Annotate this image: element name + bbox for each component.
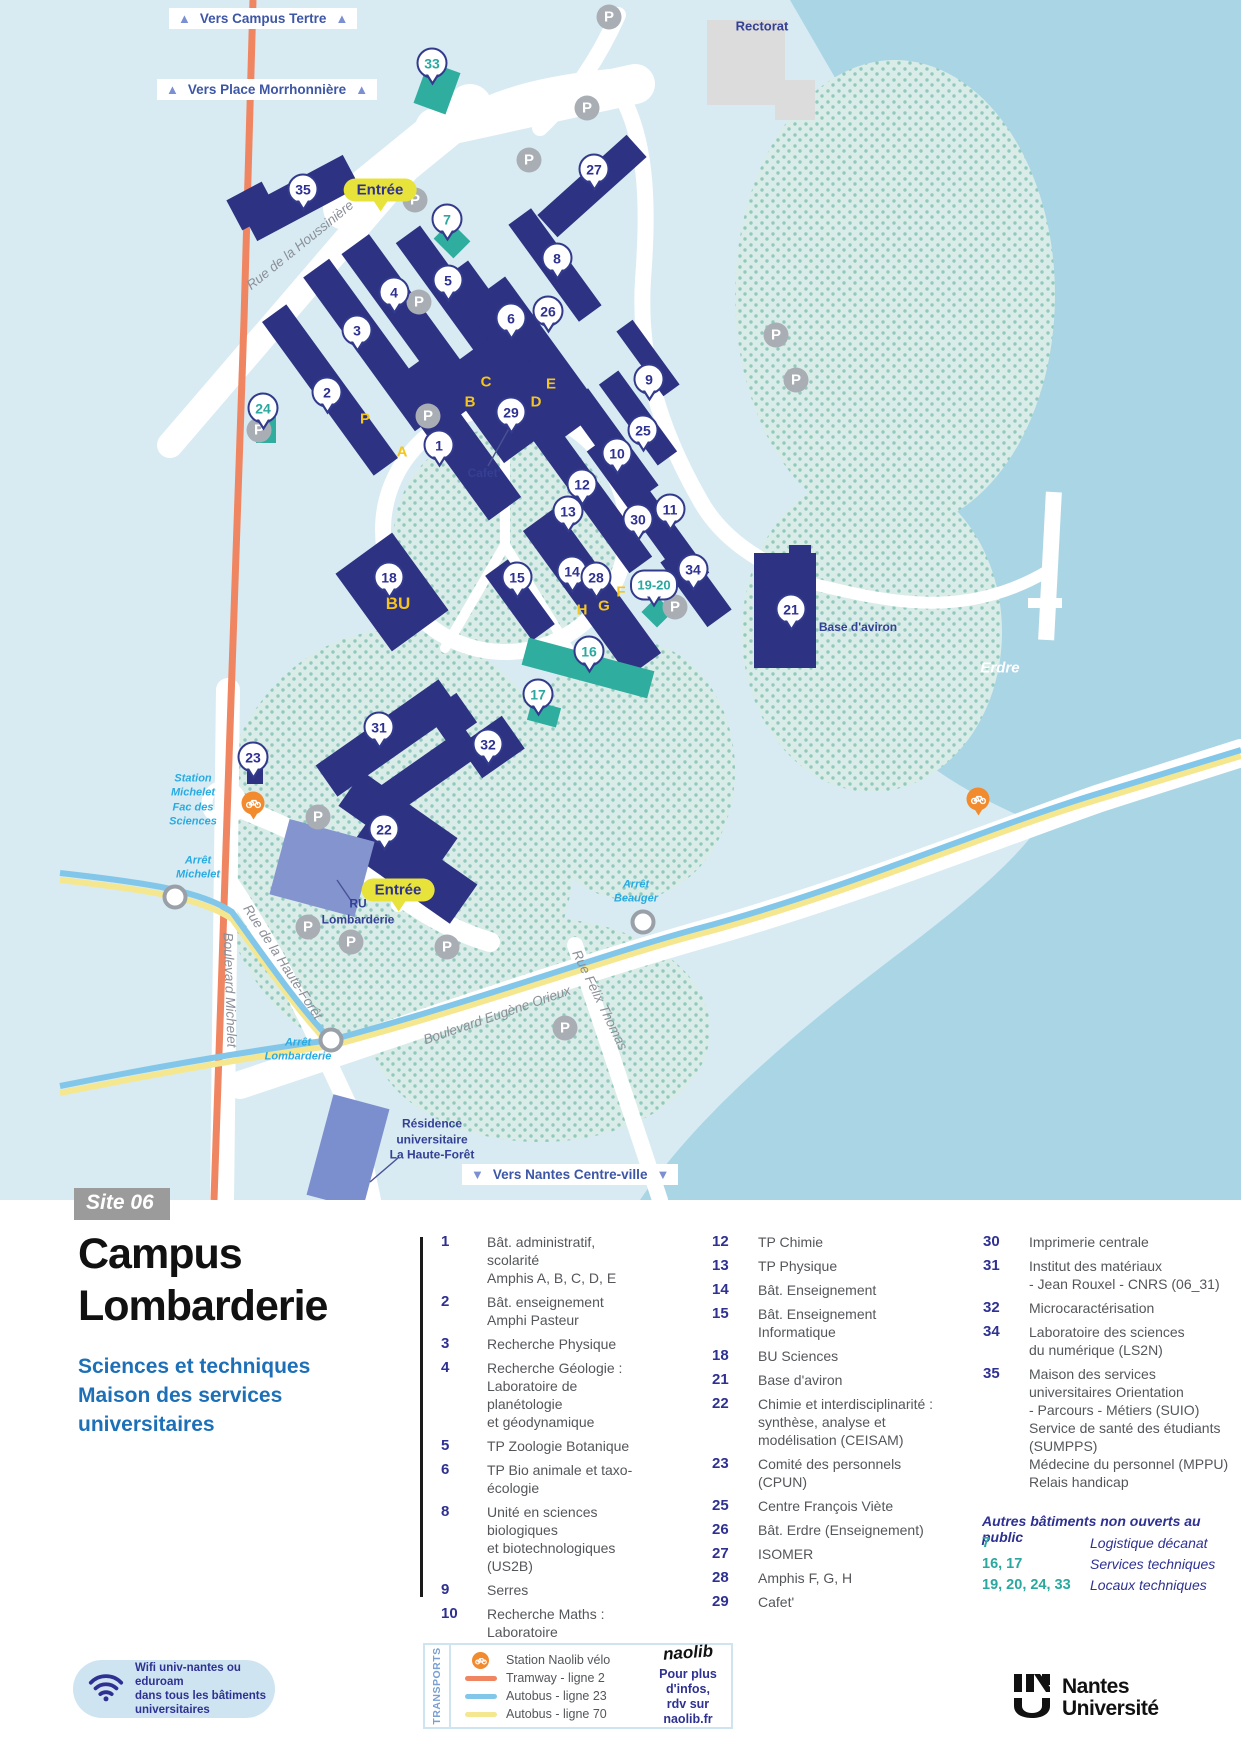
other-label: Services techniques <box>1090 1556 1215 1573</box>
base-aviron-label: Base d'aviron <box>819 620 897 636</box>
legend-item: 30Imprimerie centrale <box>983 1233 1233 1251</box>
naolib-bike-station-icon <box>472 1652 489 1669</box>
other-buildings-row: 7Logistique décanat <box>982 1535 1232 1552</box>
marker-label: 25 <box>635 422 651 438</box>
legend-item: 5TP Zoologie Botanique <box>441 1437 651 1455</box>
legend-item: 2Bât. enseignement Amphi Pasteur <box>441 1293 651 1329</box>
other-nums: 16, 17 <box>982 1556 1090 1573</box>
direction-place-morrhonniere: ▲ Vers Place Morrhonnière ▲ <box>157 79 377 100</box>
legend-num: 18 <box>712 1347 758 1365</box>
arrow-up-icon: ▲ <box>178 11 191 26</box>
marker-label: 24 <box>255 400 271 416</box>
naolib-bike-station-icon <box>967 788 990 811</box>
building-marker-5[interactable]: 5 <box>433 265 464 296</box>
legend-text: Imprimerie centrale <box>1029 1233 1149 1251</box>
legend-text: Cafet' <box>758 1593 794 1611</box>
legend-item: 27ISOMER <box>712 1545 947 1563</box>
legend-text: TP Zoologie Botanique <box>487 1437 629 1455</box>
transport-item-bus23: Autobus - ligne 23 <box>465 1687 645 1705</box>
legend-text: Comité des personnels (CPUN) <box>758 1455 947 1491</box>
transport-label: Tramway - ligne 2 <box>506 1671 605 1685</box>
building-marker-3[interactable]: 3 <box>342 315 373 346</box>
marker-label: 26 <box>540 303 556 319</box>
marker-label: 4 <box>390 284 398 300</box>
building-marker-13[interactable]: 13 <box>553 496 584 527</box>
other-nums: 19, 20, 24, 33 <box>982 1577 1090 1594</box>
building-marker-30[interactable]: 30 <box>623 504 654 535</box>
wifi-icon <box>87 1671 125 1707</box>
legend-text: Centre François Viète <box>758 1497 893 1515</box>
legend-num: 6 <box>441 1461 487 1497</box>
legend-item: 4Recherche Géologie : Laboratoire de pla… <box>441 1359 651 1431</box>
transport-item-tram: Tramway - ligne 2 <box>465 1669 645 1687</box>
legend-item: 14Bât. Enseignement <box>712 1281 947 1299</box>
marker-label: 10 <box>609 445 625 461</box>
legend-item: 3Recherche Physique <box>441 1335 651 1353</box>
legend-item: 8Unité en sciences biologiques et biotec… <box>441 1503 651 1575</box>
nantes-universite-brand: Nantes Université <box>1012 1672 1159 1723</box>
legend-text: Institut des matériaux - Jean Rouxel - C… <box>1029 1257 1220 1293</box>
building-marker-34[interactable]: 34 <box>678 554 709 585</box>
marker-label: 19-20 <box>637 578 670 593</box>
legend-text: Bât. enseignement Amphi Pasteur <box>487 1293 604 1329</box>
legend-text: Serres <box>487 1581 528 1599</box>
legend-num: 12 <box>712 1233 758 1251</box>
legend-item: 13TP Physique <box>712 1257 947 1275</box>
arrow-up-icon: ▲ <box>355 82 368 97</box>
other-label: Locaux techniques <box>1090 1577 1207 1594</box>
bus70-line-swatch <box>465 1712 497 1717</box>
arrow-down-icon: ▼ <box>656 1167 669 1182</box>
brand-name: Nantes Université <box>1062 1676 1159 1720</box>
legend-text: Bât. Enseignement Informatique <box>758 1305 876 1341</box>
parking-icon: P <box>764 323 789 348</box>
building-marker-2[interactable]: 2 <box>312 377 343 408</box>
legend-item: 21Base d'aviron <box>712 1371 947 1389</box>
legend-text: Bât. administratif, scolarité Amphis A, … <box>487 1233 651 1287</box>
legend-text: Amphis F, G, H <box>758 1569 852 1587</box>
legend-item: 9Serres <box>441 1581 651 1599</box>
erdre-label: Erdre <box>980 660 1019 677</box>
legend-text: Bât. Enseignement <box>758 1281 876 1299</box>
legend-num: 29 <box>712 1593 758 1611</box>
transport-item-bus70: Autobus - ligne 70 <box>465 1705 645 1723</box>
legend-num: 8 <box>441 1503 487 1575</box>
building-marker-16[interactable]: 16 <box>574 636 605 667</box>
marker-label: 14 <box>564 563 580 579</box>
campus-map-page: ▲ Vers Campus Tertre ▲ ▲ Vers Place Morr… <box>0 0 1241 1754</box>
direction-nantes-centre-ville: ▼ Vers Nantes Centre-ville ▼ <box>462 1164 678 1185</box>
building-marker-9[interactable]: 9 <box>634 364 665 395</box>
building-marker-8[interactable]: 8 <box>542 243 573 274</box>
marker-label: 18 <box>381 569 397 585</box>
naolib-logo: naolib <box>663 1643 714 1661</box>
marker-label: 17 <box>530 686 546 702</box>
bus23-line-swatch <box>465 1694 497 1699</box>
building-marker-29[interactable]: 29 <box>496 397 527 428</box>
building-marker-4[interactable]: 4 <box>379 277 410 308</box>
legend-num: 4 <box>441 1359 487 1431</box>
marker-label: 6 <box>507 310 515 326</box>
arret-michelet-label: Arrêt Michelet <box>176 854 220 883</box>
other-buildings-list: 7Logistique décanat 16, 17Services techn… <box>982 1535 1232 1598</box>
building-marker-18[interactable]: 18 <box>374 562 405 593</box>
legend-item: 29Cafet' <box>712 1593 947 1611</box>
legend-text: TP Physique <box>758 1257 837 1275</box>
parking-icon: P <box>407 290 432 315</box>
marker-label: 3 <box>353 322 361 338</box>
building-marker-19-20[interactable]: 19-20 <box>630 570 678 601</box>
parking-icon: P <box>553 1016 578 1041</box>
cafet-label: Cafet' <box>468 466 501 482</box>
parking-icon: P <box>416 404 441 429</box>
building-marker-32[interactable]: 32 <box>473 729 504 760</box>
marker-label: 33 <box>424 55 440 71</box>
marker-label: 23 <box>245 749 261 765</box>
legend-column-2: 12TP Chimie 13TP Physique 14Bât. Enseign… <box>712 1233 947 1617</box>
legend-item: 6TP Bio animale et taxo-écologie <box>441 1461 651 1497</box>
legend-num: 30 <box>983 1233 1029 1251</box>
marker-label: 27 <box>586 161 602 177</box>
legend-num: 1 <box>441 1233 487 1287</box>
marker-label: 21 <box>783 601 799 617</box>
legend-num: 15 <box>712 1305 758 1341</box>
legend-num: 32 <box>983 1299 1029 1317</box>
legend-text: Base d'aviron <box>758 1371 842 1389</box>
legend-num: 35 <box>983 1365 1029 1491</box>
legend-text: BU Sciences <box>758 1347 838 1365</box>
amphi-letter-c: C <box>481 374 492 391</box>
legend-text: Unité en sciences biologiques et biotech… <box>487 1503 651 1575</box>
building-marker-1[interactable]: 1 <box>424 430 455 461</box>
legend-text: Laboratoire des sciences du numérique (L… <box>1029 1323 1185 1359</box>
other-buildings-row: 16, 17Services techniques <box>982 1556 1232 1573</box>
marker-label: 30 <box>630 511 646 527</box>
legend-column-3: 30Imprimerie centrale 31Institut des mat… <box>983 1233 1233 1497</box>
marker-label: 29 <box>503 404 519 420</box>
parking-icon: P <box>517 148 542 173</box>
amphi-letter-e: E <box>546 376 556 393</box>
parking-icon: P <box>296 915 321 940</box>
legend-num: 31 <box>983 1257 1029 1293</box>
amphi-letter-d: D <box>531 394 542 411</box>
amphi-letter-f: F <box>616 584 625 601</box>
amphi-letter-p: P <box>360 411 370 428</box>
residence-label: Résidence universitaire La Haute-Forêt <box>390 1117 475 1164</box>
legend-item: 28Amphis F, G, H <box>712 1569 947 1587</box>
entrance-badge-south: Entrée <box>362 879 435 902</box>
legend-text: TP Chimie <box>758 1233 823 1251</box>
marker-label: 13 <box>560 503 576 519</box>
legend-divider <box>420 1237 423 1597</box>
transport-item-bike: Station Naolib vélo <box>465 1651 645 1669</box>
legend-num: 25 <box>712 1497 758 1515</box>
arrow-up-icon: ▲ <box>166 82 179 97</box>
transport-label: Autobus - ligne 23 <box>506 1689 607 1703</box>
legend-num: 27 <box>712 1545 758 1563</box>
arrow-up-icon: ▲ <box>335 11 348 26</box>
legend-num: 14 <box>712 1281 758 1299</box>
direction-label: Vers Campus Tertre <box>200 11 327 26</box>
legend-num: 34 <box>983 1323 1029 1359</box>
building-marker-7[interactable]: 7 <box>432 204 463 235</box>
site-badge: Site 06 <box>74 1188 170 1220</box>
map-canvas[interactable]: ▲ Vers Campus Tertre ▲ ▲ Vers Place Morr… <box>0 0 1241 1200</box>
legend-text: Microcaractérisation <box>1029 1299 1154 1317</box>
naolib-block: naolib Pour plus d'infos, rdv sur naolib… <box>645 1645 731 1727</box>
direction-campus-tertre: ▲ Vers Campus Tertre ▲ <box>169 8 357 29</box>
building-marker-15[interactable]: 15 <box>502 562 533 593</box>
other-nums: 7 <box>982 1535 1090 1552</box>
building-marker-33[interactable]: 33 <box>417 48 448 79</box>
legend-num: 23 <box>712 1455 758 1491</box>
marker-label: 32 <box>480 736 496 752</box>
legend-item: 1Bât. administratif, scolarité Amphis A,… <box>441 1233 651 1287</box>
arrow-down-icon: ▼ <box>471 1167 484 1182</box>
amphi-letter-h: H <box>577 602 588 619</box>
legend-num: 13 <box>712 1257 758 1275</box>
building-marker-6[interactable]: 6 <box>496 303 527 334</box>
transports-legend: TRANSPORTS Station Naolib vélo Tramway -… <box>423 1643 733 1729</box>
building-marker-24[interactable]: 24 <box>248 393 279 424</box>
parking-icon: P <box>784 368 809 393</box>
marker-label: 15 <box>509 569 525 585</box>
legend-num: 9 <box>441 1581 487 1599</box>
bus-stop-lombarderie <box>319 1028 344 1053</box>
entrance-badge-north: Entrée <box>344 179 417 202</box>
building-marker-21[interactable]: 21 <box>776 594 807 625</box>
transports-items: Station Naolib vélo Tramway - ligne 2 Au… <box>451 1645 645 1727</box>
legend-item: 35Maison des services universitaires Ori… <box>983 1365 1233 1491</box>
legend-item: 12TP Chimie <box>712 1233 947 1251</box>
marker-label: 12 <box>574 476 590 492</box>
building-marker-10[interactable]: 10 <box>602 438 633 469</box>
transports-title: TRANSPORTS <box>425 1645 451 1727</box>
legend-text: ISOMER <box>758 1545 813 1563</box>
legend-item: 32Microcaractérisation <box>983 1299 1233 1317</box>
legend-num: 22 <box>712 1395 758 1449</box>
legend-num: 5 <box>441 1437 487 1455</box>
legend-item: 18BU Sciences <box>712 1347 947 1365</box>
legend-item: 31Institut des matériaux - Jean Rouxel -… <box>983 1257 1233 1293</box>
parking-icon: P <box>575 96 600 121</box>
nantes-universite-logo-icon <box>1012 1672 1052 1723</box>
other-label: Logistique décanat <box>1090 1535 1208 1552</box>
marker-label: 16 <box>581 643 597 659</box>
marker-label: 8 <box>553 250 561 266</box>
building-marker-25[interactable]: 25 <box>628 415 659 446</box>
rectorat-label: Rectorat <box>736 19 789 36</box>
legend-item: 15Bât. Enseignement Informatique <box>712 1305 947 1341</box>
other-buildings-row: 19, 20, 24, 33Locaux techniques <box>982 1577 1232 1594</box>
marker-label: 22 <box>376 821 392 837</box>
marker-label: 2 <box>323 384 331 400</box>
parking-icon: P <box>435 935 460 960</box>
legend-num: 2 <box>441 1293 487 1329</box>
marker-label: 28 <box>588 569 604 585</box>
legend-item: 23Comité des personnels (CPUN) <box>712 1455 947 1491</box>
page-title: Campus Lombarderie <box>78 1228 327 1332</box>
legend-num: 3 <box>441 1335 487 1353</box>
bus-stop-beauger <box>631 910 656 935</box>
marker-label: 9 <box>645 371 653 387</box>
wifi-text: Wifi univ-nantes ou eduroam dans tous le… <box>135 1661 269 1717</box>
marker-label: 31 <box>371 719 387 735</box>
amphi-letter-a: A <box>397 444 408 461</box>
building-marker-11[interactable]: 11 <box>655 494 686 525</box>
naolib-bike-station-icon <box>242 792 265 815</box>
legend-text: Chimie et interdisciplinarité : synthèse… <box>758 1395 933 1449</box>
direction-label: Vers Place Morrhonnière <box>188 82 346 97</box>
legend-text: TP Bio animale et taxo-écologie <box>487 1461 651 1497</box>
legend-item: 25Centre François Viète <box>712 1497 947 1515</box>
marker-label: 35 <box>295 181 311 197</box>
legend-text: Recherche Physique <box>487 1335 616 1353</box>
wifi-pill: Wifi univ-nantes ou eduroam dans tous le… <box>73 1660 275 1718</box>
building-marker-28[interactable]: 28 <box>581 562 612 593</box>
tram-line-swatch <box>465 1676 497 1681</box>
transport-label: Station Naolib vélo <box>506 1653 610 1667</box>
building-marker-22[interactable]: 22 <box>369 814 400 845</box>
legend-num: 28 <box>712 1569 758 1587</box>
legend-item: 26Bât. Erdre (Enseignement) <box>712 1521 947 1539</box>
arret-beauger-label: Arrêt Beauger <box>614 878 658 907</box>
building-marker-17[interactable]: 17 <box>523 679 554 710</box>
legend-num: 21 <box>712 1371 758 1389</box>
legend-item: 34Laboratoire des sciences du numérique … <box>983 1323 1233 1359</box>
legend-text: Bât. Erdre (Enseignement) <box>758 1521 924 1539</box>
building-marker-27[interactable]: 27 <box>579 154 610 185</box>
building-marker-35[interactable]: 35 <box>288 174 319 205</box>
marker-label: 1 <box>435 437 443 453</box>
direction-label: Vers Nantes Centre-ville <box>493 1167 648 1182</box>
transport-label: Autobus - ligne 70 <box>506 1707 607 1721</box>
page-subtitle: Sciences et techniques Maison des servic… <box>78 1352 310 1439</box>
marker-label: 7 <box>443 211 451 227</box>
marker-label: 34 <box>685 561 701 577</box>
legend-text: Recherche Géologie : Laboratoire de plan… <box>487 1359 651 1431</box>
building-marker-31[interactable]: 31 <box>364 712 395 743</box>
legend-item: 22Chimie et interdisciplinarité : synthè… <box>712 1395 947 1449</box>
marker-label: 5 <box>444 272 452 288</box>
building-marker-26[interactable]: 26 <box>533 296 564 327</box>
marker-label: 11 <box>663 501 678 517</box>
parking-icon: P <box>597 5 622 30</box>
naolib-info-text: Pour plus d'infos, rdv sur naolib.fr <box>645 1667 731 1727</box>
station-michelet-label: Station Michelet Fac des Sciences <box>169 771 217 828</box>
legend-num: 26 <box>712 1521 758 1539</box>
amphi-letter-b: B <box>465 394 476 411</box>
tram-stop-michelet <box>163 885 188 910</box>
parking-icon: P <box>339 930 364 955</box>
legend-text: Maison des services universitaires Orien… <box>1029 1365 1228 1491</box>
building-marker-23[interactable]: 23 <box>238 742 269 773</box>
parking-icon: P <box>306 805 331 830</box>
